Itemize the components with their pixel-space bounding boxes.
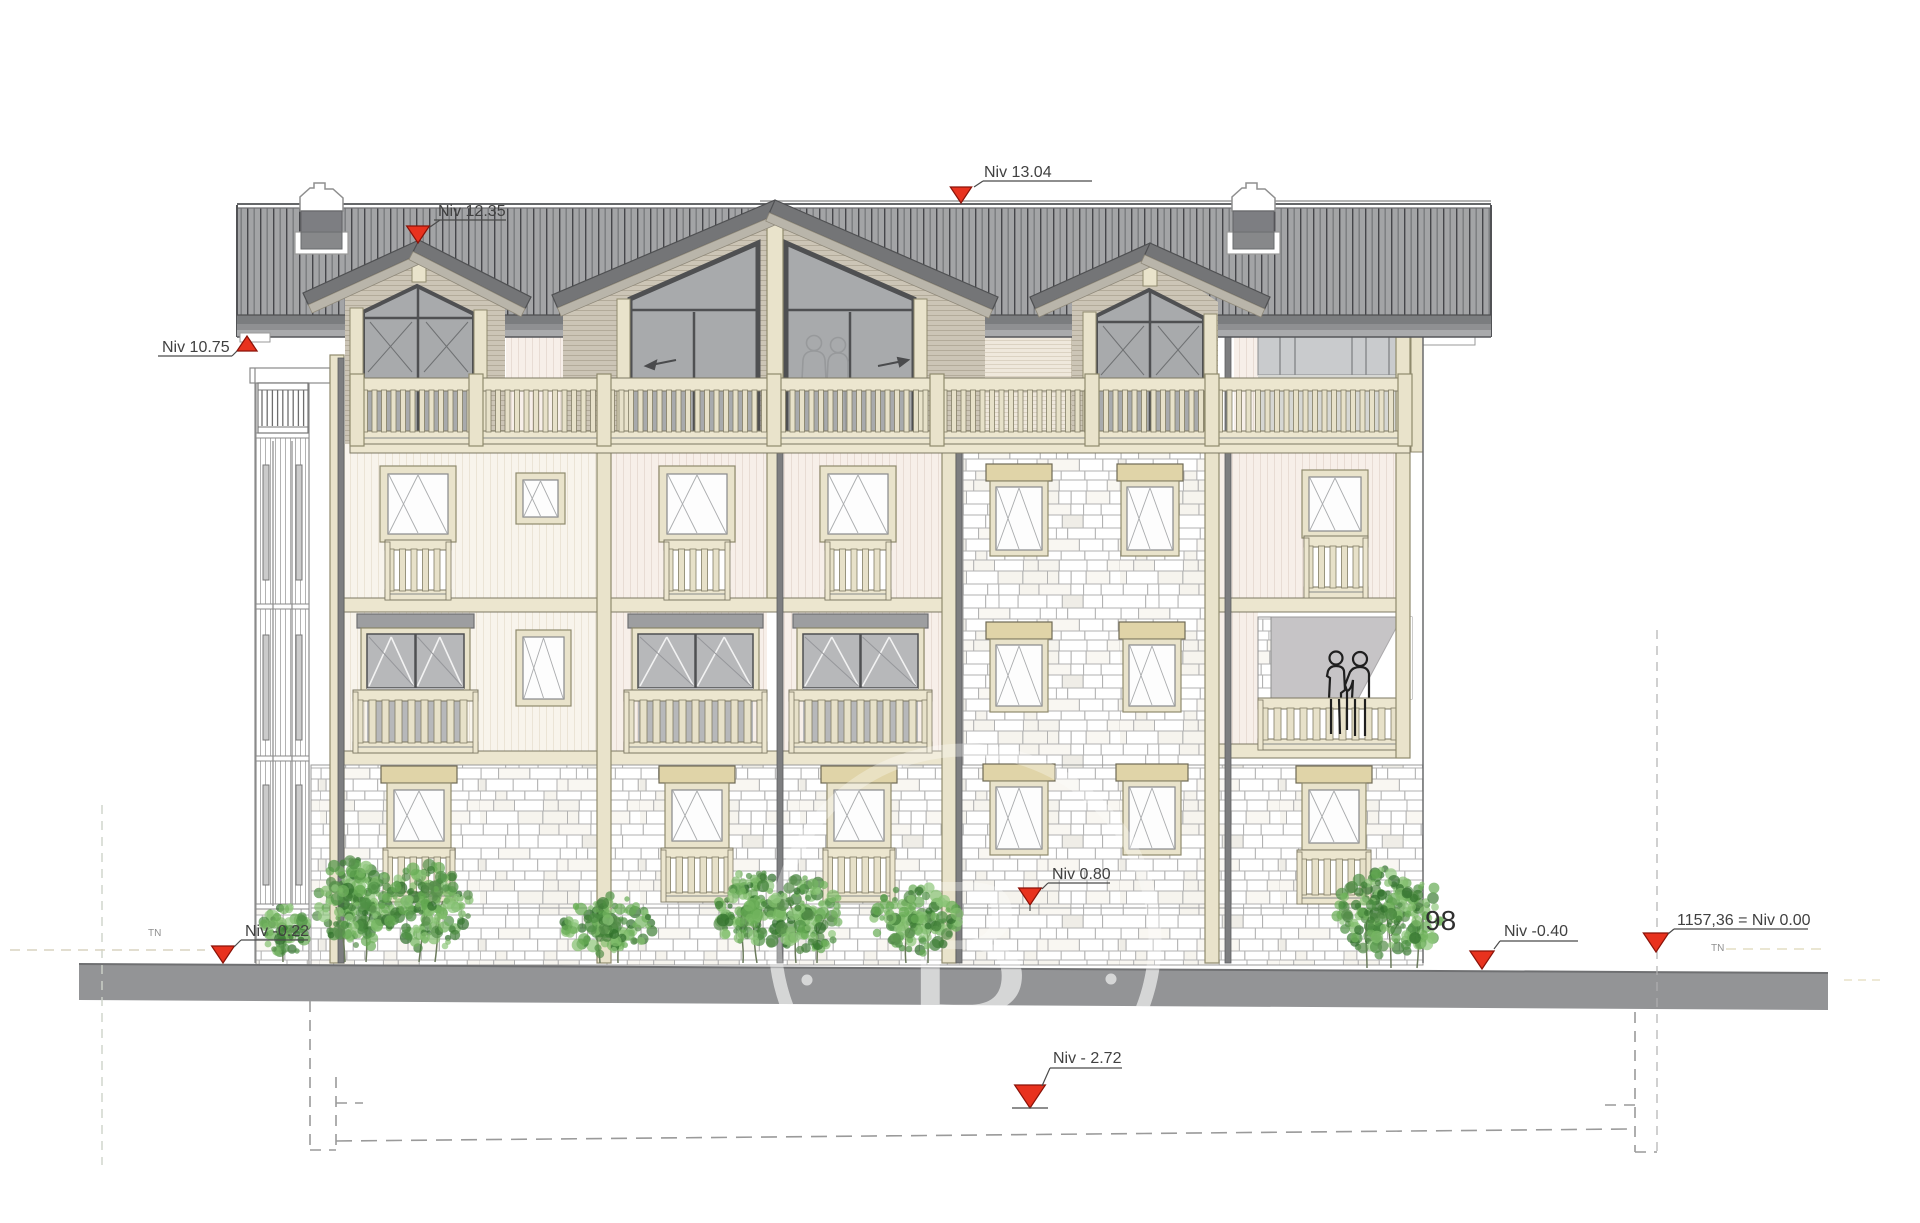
svg-text:Niv 10.75: Niv 10.75 — [162, 339, 230, 356]
svg-text:Niv 13.04: Niv 13.04 — [984, 164, 1052, 181]
svg-text:Niv 0.80: Niv 0.80 — [1052, 866, 1111, 883]
svg-text:Niv -0.40: Niv -0.40 — [1504, 923, 1568, 940]
svg-text:Niv 12.35: Niv 12.35 — [438, 203, 506, 220]
svg-text:98: 98 — [1425, 905, 1456, 936]
svg-text:Niv - 2.72: Niv - 2.72 — [1053, 1050, 1122, 1067]
svg-text:1157,36 = Niv 0.00: 1157,36 = Niv 0.00 — [1677, 912, 1811, 929]
svg-text:TN: TN — [1711, 943, 1724, 954]
svg-text:Niv -0.22: Niv -0.22 — [245, 923, 309, 940]
svg-text:TN: TN — [148, 928, 161, 939]
